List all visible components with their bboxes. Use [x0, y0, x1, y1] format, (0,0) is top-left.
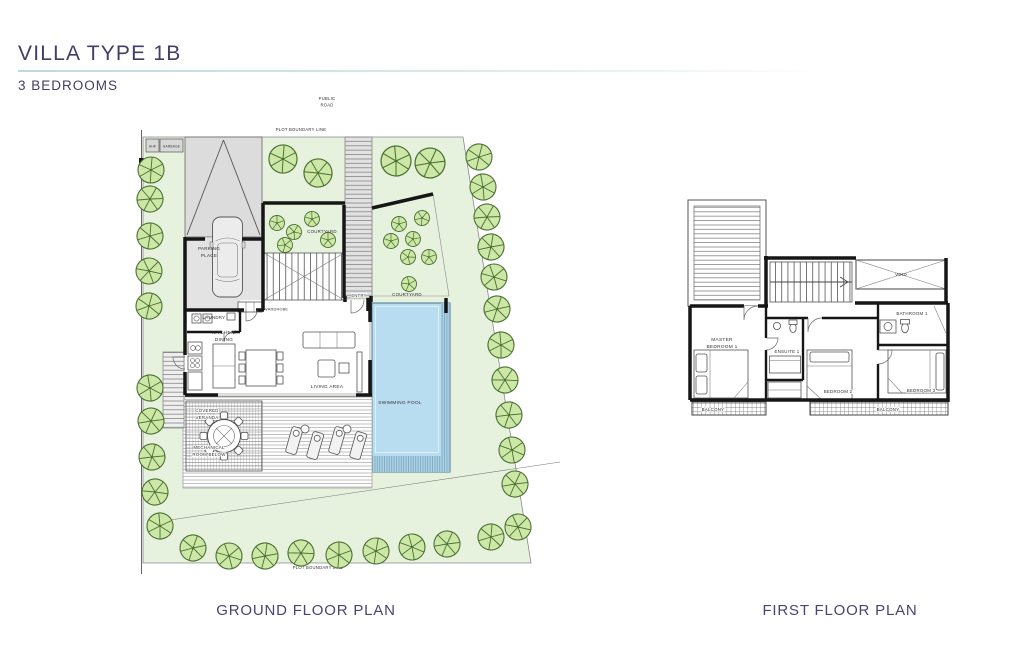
bathroom-label: BATHROOM 1 — [896, 311, 928, 316]
ahk-label: AHK — [149, 145, 157, 149]
entry-label: ENTRY — [351, 293, 366, 298]
bedroom2-label: BEDROOM 2 — [824, 389, 853, 394]
stairwell — [770, 262, 852, 302]
garbage-label: GARBAGE — [163, 145, 181, 149]
parking-label-2: PLACE — [201, 253, 217, 258]
roof-hatch-panel — [688, 200, 766, 306]
swimming-pool-label: SWIMMING POOL — [378, 400, 422, 406]
first-floor-plan: VOID BALCONY BALCONY — [688, 200, 948, 415]
kitchen-label-1: KITCHEN/ — [212, 330, 237, 336]
bedroom3-bed-icon — [888, 350, 946, 393]
balcony-left-label: BALCONY — [702, 407, 725, 412]
parking-label-1: PARKING — [198, 246, 220, 251]
ground-floor-caption: GROUND FLOOR PLAN — [186, 602, 426, 619]
mechanical-room-label-2: ROOM BELOW — [192, 452, 226, 457]
void-area: VOID — [856, 260, 946, 289]
dining-table-icon — [239, 350, 283, 386]
tree-icon — [464, 142, 494, 172]
master-bedroom-label-2: BEDROOM 1 — [706, 344, 737, 350]
living-area-label: LIVING AREA — [311, 384, 344, 390]
first-floor-caption: FIRST FLOOR PLAN — [720, 602, 960, 619]
service-boxes: AHK GARBAGE — [146, 139, 183, 152]
void-label: VOID — [895, 272, 907, 277]
balcony-right-label: BALCONY — [877, 407, 900, 412]
ground-floor-plan: PLOT BOUNDARY LINE AHK GARBAGE — [131, 96, 560, 574]
wardrobe-label: WARDROBE — [264, 308, 288, 312]
swimming-pool: SWIMMING POOL — [372, 303, 450, 472]
veranda-deck: COVERED VERANDA MECHANICAL ROOM BELOW — [183, 397, 372, 488]
public-road-label-2: ROAD — [320, 103, 333, 108]
plan-sheet: VILLA TYPE 1B 3 BEDROOMS — [0, 0, 1024, 662]
plans-drawing: PLOT BOUNDARY LINE AHK GARBAGE — [0, 0, 1024, 662]
master-bed-icon — [694, 350, 748, 398]
courtyard-upper-label: COURTYARD — [307, 229, 337, 234]
bedroom3-label: BEDROOM 3 — [907, 388, 936, 393]
veranda-label-2: VERANDA — [196, 415, 219, 420]
laundry-label: LAUNDRY — [203, 315, 226, 320]
ensuite-label: ENSUITE 1 — [775, 349, 800, 354]
courtyard-entry-label: COURTYARD — [392, 292, 422, 297]
master-bedroom-label-1: MASTER — [711, 337, 733, 343]
public-road-label-1: PUBLIC — [319, 96, 336, 101]
external-stair — [163, 352, 184, 428]
veranda-label-1: COVERED — [195, 408, 218, 413]
entry-walkway: ENTRY — [345, 137, 372, 298]
mechanical-room-label-1: MECHANICAL — [193, 445, 225, 450]
courtyard-upper: COURTYARD — [263, 205, 344, 256]
tree-icon — [138, 157, 164, 183]
plot-boundary-top-label: PLOT BOUNDARY LINE — [276, 127, 327, 132]
balcony-left: BALCONY — [692, 402, 766, 415]
kitchen-label-2: DINING — [215, 337, 233, 343]
balcony-right: BALCONY — [810, 402, 948, 415]
tree-icon — [269, 145, 297, 173]
main-staircase — [264, 253, 344, 300]
